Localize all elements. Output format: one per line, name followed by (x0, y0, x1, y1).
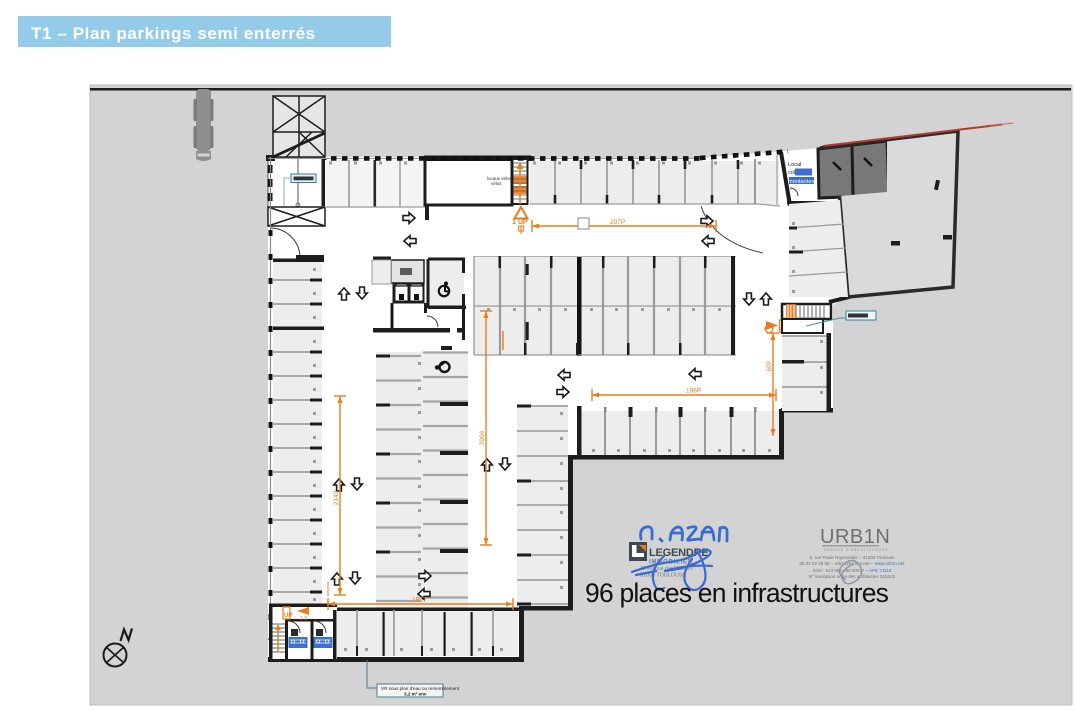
svg-text:1 UP: 1 UP (512, 219, 528, 226)
svg-text:montantes: montantes (788, 179, 814, 185)
svg-text:1967: 1967 (412, 597, 427, 604)
svg-text:5, rue Paule Raymondis – 31200: 5, rue Paule Raymondis – 31200 Toulouse (810, 555, 895, 560)
svg-text:1 S: 1 S (300, 616, 308, 622)
svg-text:AGENCE D'ARCHITECTURE: AGENCE D'ARCHITECTURE (824, 548, 888, 552)
svg-text:207P: 207P (610, 219, 625, 226)
svg-text:URB1N: URB1N (820, 526, 890, 548)
svg-text:196P: 196P (686, 388, 701, 395)
svg-text:VR sous plan d'eau ou rememble: VR sous plan d'eau ou rememblement (381, 686, 460, 691)
svg-text:60P: 60P (767, 361, 773, 372)
svg-text:Siret : 514 952 456 00017 – AP: Siret : 514 952 456 00017 – APE 7111Z (813, 568, 892, 573)
svg-text:3,2 m² env: 3,2 m² env (404, 692, 427, 697)
svg-text:2904: 2904 (479, 430, 486, 445)
svg-text:2140: 2140 (333, 490, 340, 505)
svg-text:vélos: vélos (491, 181, 502, 186)
svg-text:UP: UP (284, 613, 292, 619)
svg-text:T1 – Plan parkings semi enterr: T1 – Plan parkings semi enterrés (31, 24, 316, 43)
svg-text:96 places en infrastructures: 96 places en infrastructures (585, 578, 889, 608)
svg-text:Local: Local (788, 162, 801, 168)
